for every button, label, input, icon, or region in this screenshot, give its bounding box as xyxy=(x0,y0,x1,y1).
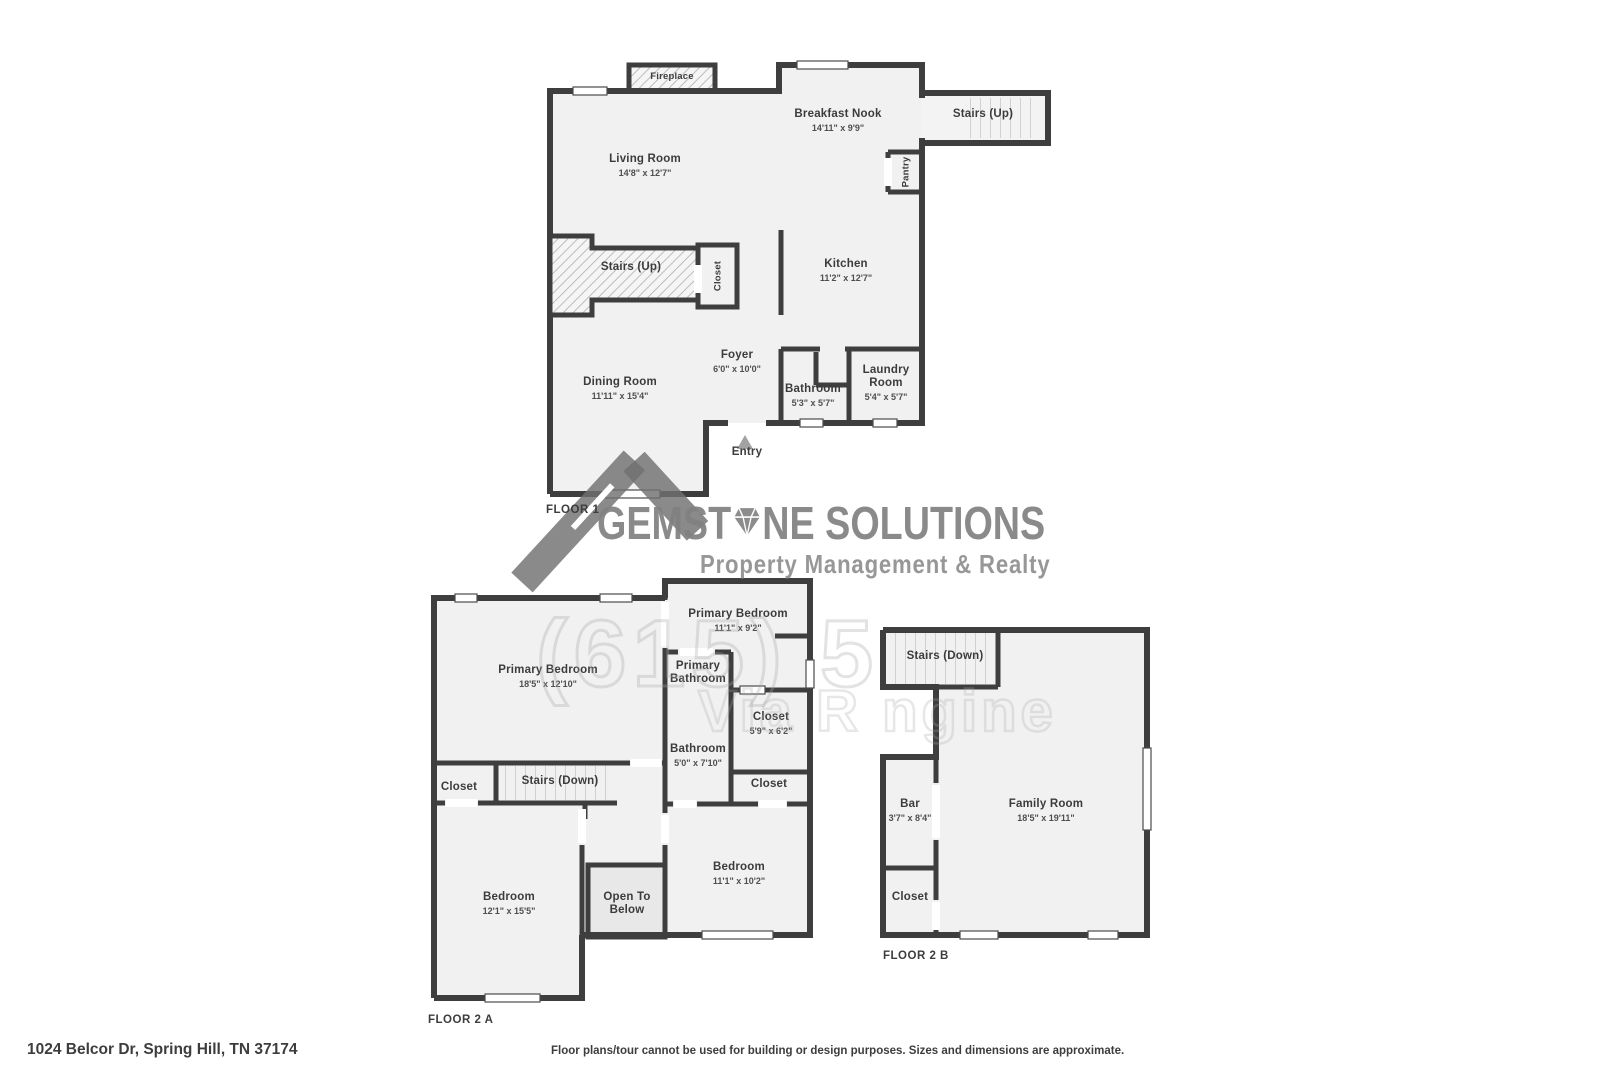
closet-door-opening xyxy=(694,265,702,293)
room-label-family-room: Family Room18'5" x 19'11" xyxy=(1009,798,1083,825)
room-label-closet: Closet xyxy=(712,261,725,291)
room-label-bedroom-right: Bedroom11'1" x 10'2" xyxy=(713,861,765,888)
room-label-bar: Bar3'7" x 8'4" xyxy=(889,798,932,825)
room-label-pantry: Pantry xyxy=(900,157,913,188)
room-label-fireplace: Fireplace xyxy=(650,70,694,83)
floor2a-drawing xyxy=(425,575,820,1010)
room-label-bathroom-2a: Bathroom5'0" x 7'10" xyxy=(670,743,726,770)
floor1-plan: Fireplace Breakfast Nook14'11" x 9'9" St… xyxy=(540,58,1055,518)
room-label-stairs-down-2b: Stairs (Down) xyxy=(907,650,984,663)
floor2a-tag: FLOOR 2 A xyxy=(428,1014,493,1026)
room-label-entry: Entry xyxy=(732,446,762,459)
floor2b-tag: FLOOR 2 B xyxy=(883,950,949,962)
floor2b-drawing xyxy=(875,622,1160,962)
room-label-closet-right: Closet xyxy=(751,778,787,791)
room-label-open-to-below: Open To Below xyxy=(592,891,662,917)
room-label-breakfast-nook: Breakfast Nook14'11" x 9'9" xyxy=(794,108,881,135)
room-label-stairs-up: Stairs (Up) xyxy=(601,261,661,274)
room-label-closet-left: Closet xyxy=(441,781,477,794)
room-label-laundry-room: Laundry Room5'4" x 5'7" xyxy=(859,364,913,404)
room-label-primary-bathroom: Primary Bathroom xyxy=(663,660,733,686)
disclaimer-text: Floor plans/tour cannot be used for buil… xyxy=(551,1045,1124,1057)
room-label-living-room: Living Room14'8" x 12'7" xyxy=(609,153,681,180)
room-label-bathroom: Bathroom5'3" x 5'7" xyxy=(785,383,841,410)
room-label-foyer: Foyer6'0" x 10'0" xyxy=(713,349,761,376)
property-address: 1024 Belcor Dr, Spring Hill, TN 37174 xyxy=(27,1041,298,1059)
room-label-dining-room: Dining Room11'11" x 15'4" xyxy=(583,376,657,403)
floor1-tag: FLOOR 1 xyxy=(546,504,599,516)
room-label-primary-bedroom-large: Primary Bedroom18'5" x 12'10" xyxy=(498,664,598,691)
floor2b-plan: Stairs (Down) Bar3'7" x 8'4" Family Room… xyxy=(875,622,1160,962)
pantry-door-opening xyxy=(884,158,892,186)
room-label-stairs-down-2a: Stairs (Down) xyxy=(522,775,599,788)
room-label-bedroom-left: Bedroom12'1" x 15'5" xyxy=(483,891,536,918)
room-label-kitchen: Kitchen11'2" x 12'7" xyxy=(820,258,872,285)
floor2a-plan: Primary Bedroom18'5" x 12'10" Primary Be… xyxy=(425,575,820,1010)
floorplan-page: Fireplace Breakfast Nook14'11" x 9'9" St… xyxy=(0,0,1600,1067)
room-label-stairs-up-wing: Stairs (Up) xyxy=(953,108,1013,121)
room-label-primary-bedroom-small: Primary Bedroom11'1" x 9'2" xyxy=(688,608,788,635)
room-label-closet-2b: Closet xyxy=(892,891,928,904)
room-label-closet-upper: Closet5'9" x 6'2" xyxy=(750,711,793,738)
